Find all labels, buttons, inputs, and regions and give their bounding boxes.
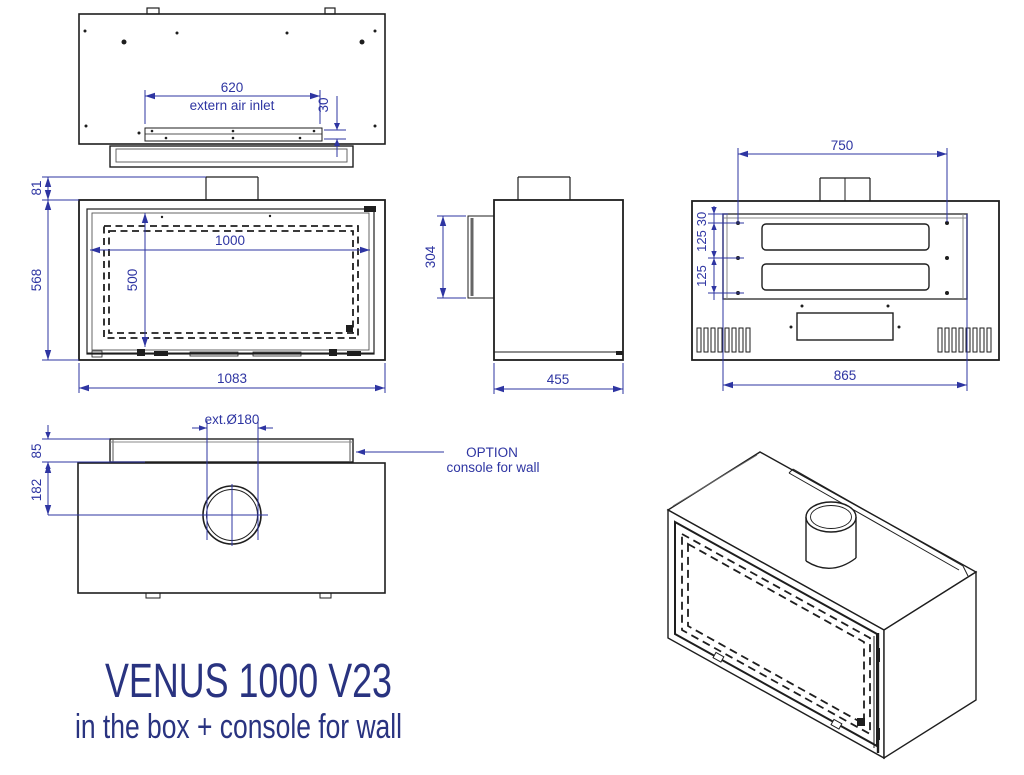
- dim-81: 81: [29, 180, 44, 195]
- console-view-dimensions: [42, 421, 444, 546]
- dim-1083: 1083: [217, 371, 247, 386]
- drawing-title: VENUS 1000 V23: [105, 655, 392, 708]
- extern-air-inlet-slot: [145, 128, 322, 141]
- dim-85: 85: [29, 443, 44, 458]
- isometric-view: [668, 452, 976, 758]
- dim-125-upper: 125: [694, 230, 709, 252]
- side-view: [468, 177, 623, 360]
- drawing-canvas: 620 extern air inlet 30: [0, 0, 1024, 775]
- option-label-line2: console for wall: [446, 460, 539, 475]
- dim-182: 182: [29, 479, 44, 502]
- dim-30-top: 30: [316, 97, 331, 112]
- extern-air-inlet-label: extern air inlet: [190, 98, 275, 113]
- front-view: [79, 177, 385, 360]
- technical-drawing-sheet: 620 extern air inlet 30: [0, 0, 1024, 775]
- dim-568: 568: [29, 269, 44, 292]
- dim-865: 865: [834, 368, 857, 383]
- dim-ext-diameter-180: ext.Ø180: [205, 412, 260, 427]
- dim-620: 620: [221, 80, 244, 95]
- rear-view-dimensions: [708, 148, 967, 391]
- option-label-line1: OPTION: [466, 445, 518, 460]
- dim-125-lower: 125: [694, 265, 709, 287]
- dim-455: 455: [547, 372, 570, 387]
- dim-304: 304: [423, 245, 438, 268]
- drawing-subtitle: in the box + console for wall: [75, 708, 402, 746]
- dim-750: 750: [831, 138, 854, 153]
- dim-30-rear: 30: [694, 212, 709, 226]
- dim-1000: 1000: [215, 233, 245, 248]
- dim-500: 500: [125, 269, 140, 292]
- side-view-dimensions: [437, 216, 623, 394]
